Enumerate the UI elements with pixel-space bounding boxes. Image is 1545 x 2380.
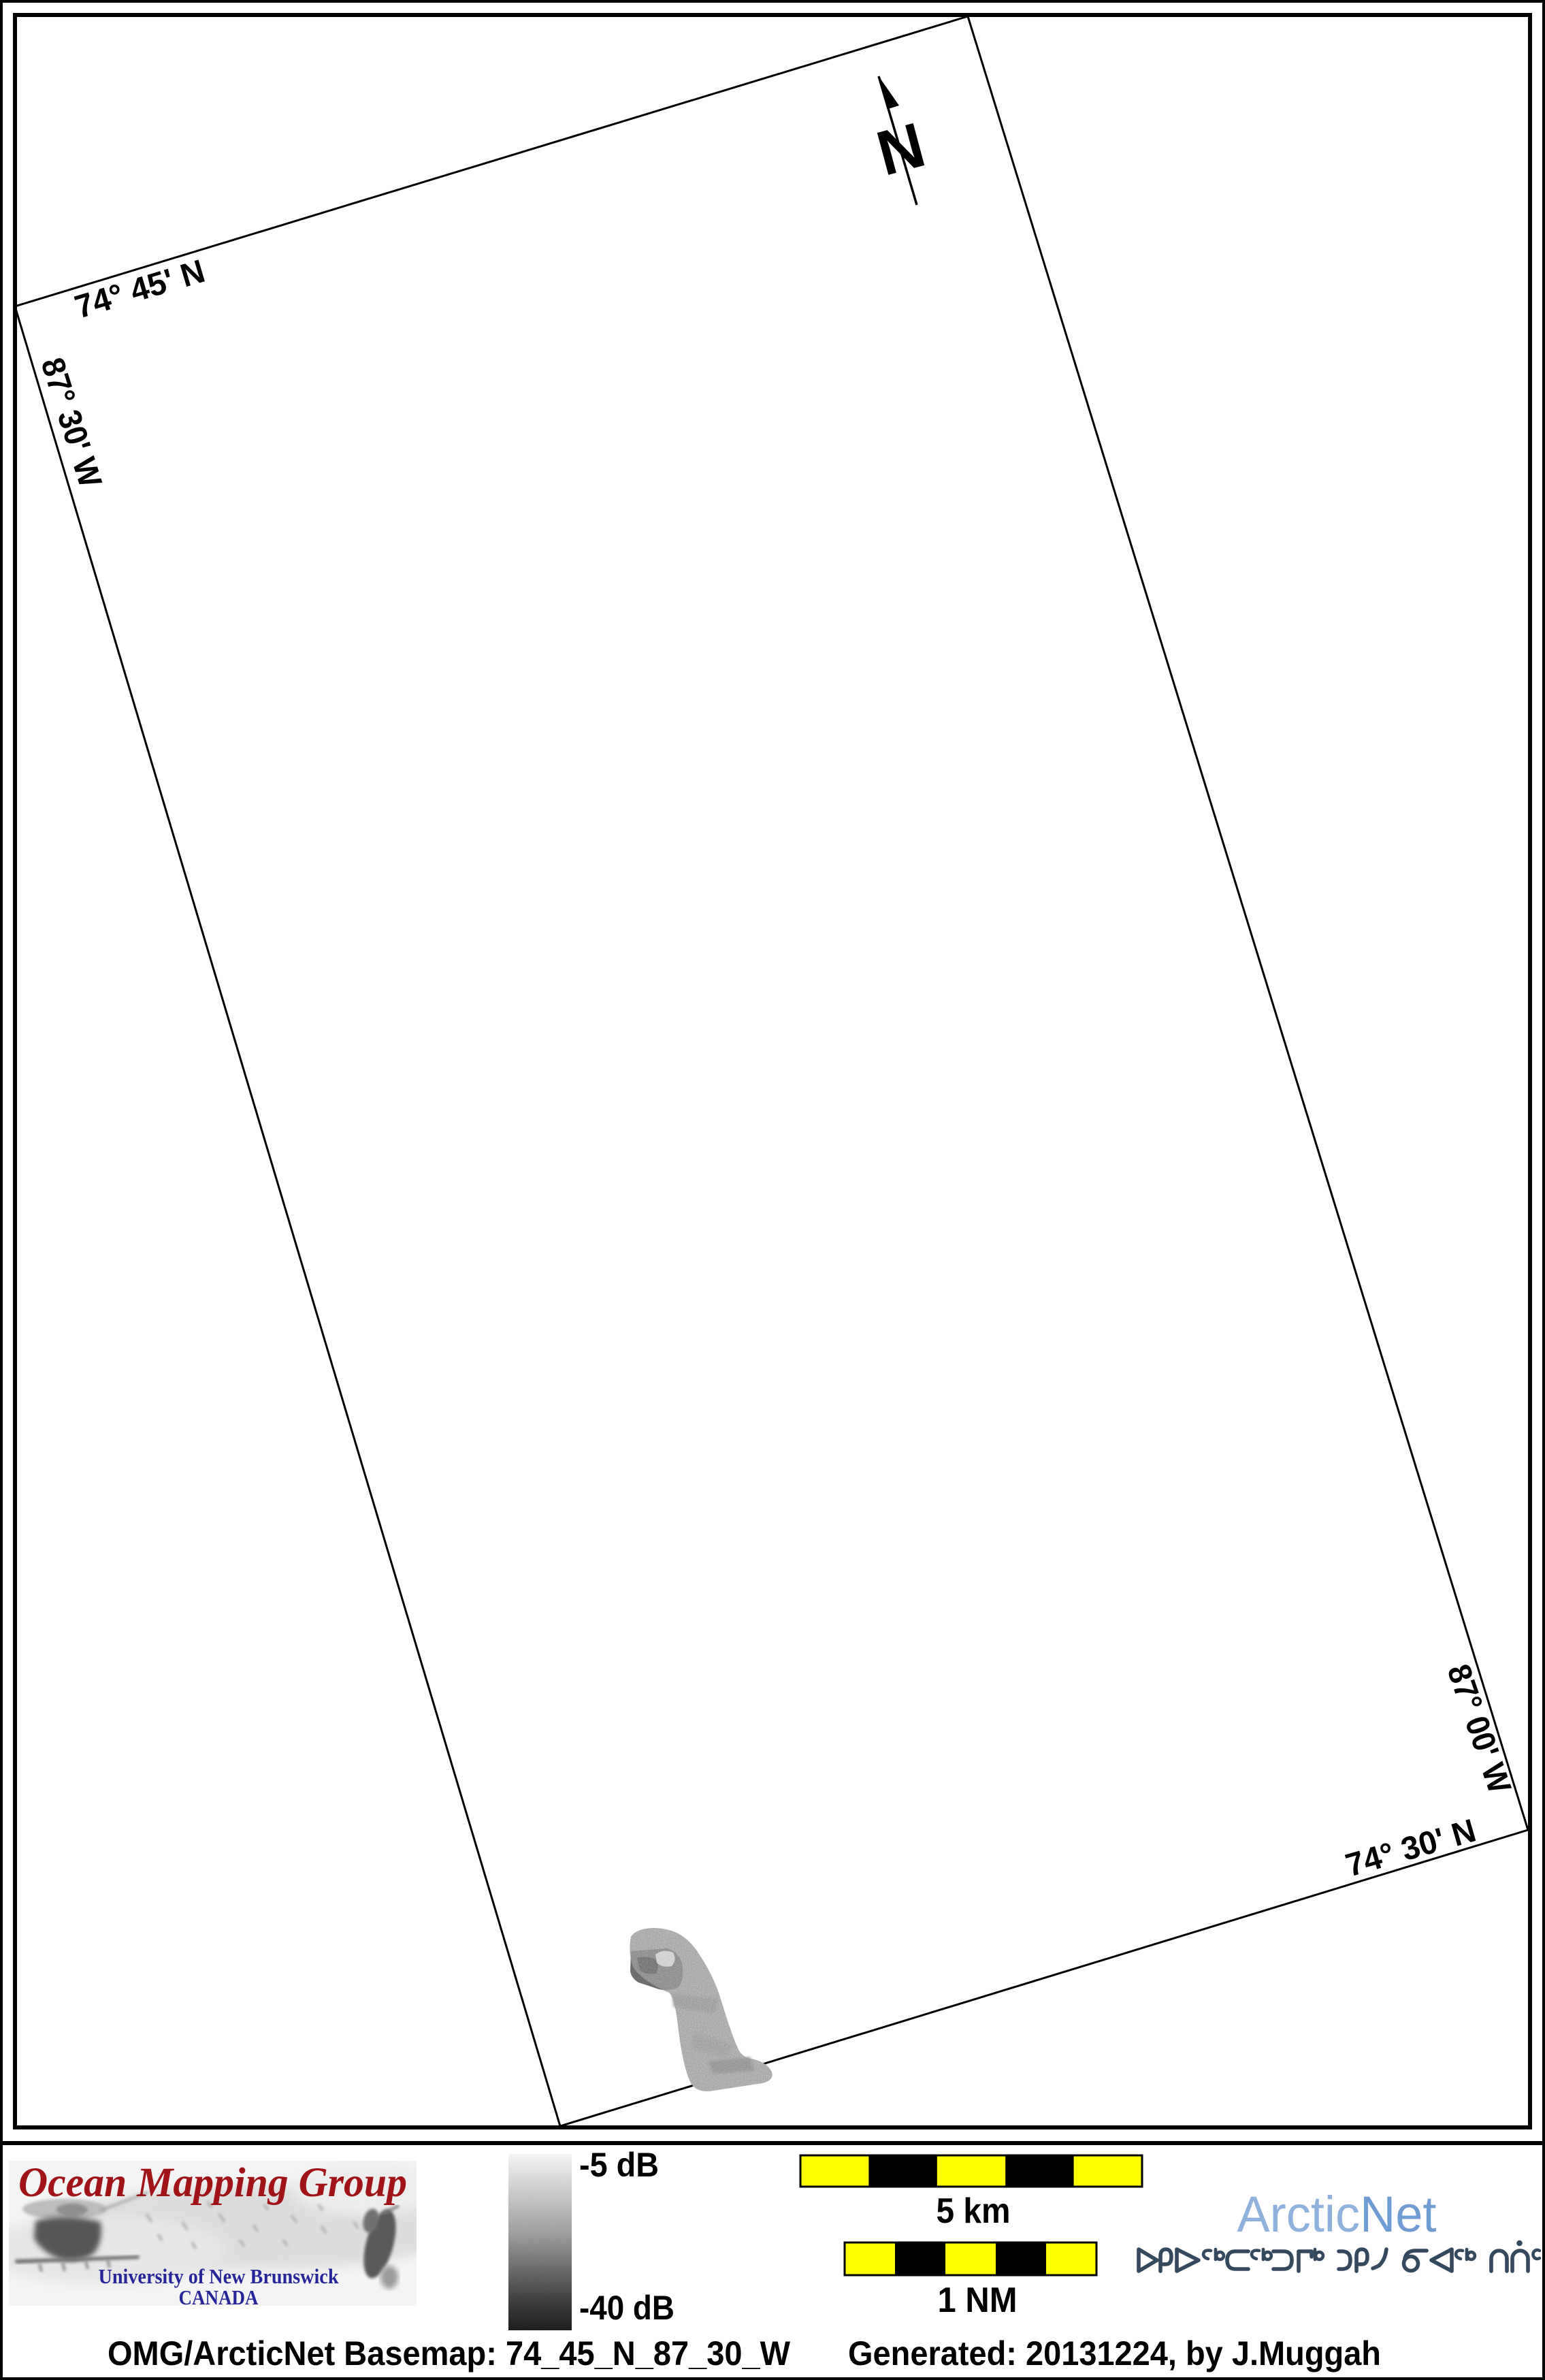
svg-text:CANADA: CANADA [179, 2285, 259, 2309]
svg-text:OMG/ArcticNet Basemap: 74_45_N: OMG/ArcticNet Basemap: 74_45_N_87_30_W [108, 2334, 791, 2373]
svg-text:-5 dB: -5 dB [579, 2146, 659, 2184]
svg-text:ArcticNet: ArcticNet [1237, 2186, 1437, 2242]
svg-text:University of New Brunswick: University of New Brunswick [99, 2264, 340, 2288]
svg-text:Generated: 20131224, by J.Mugg: Generated: 20131224, by J.Muggah [848, 2334, 1381, 2373]
svg-text:Ocean Mapping Group: Ocean Mapping Group [18, 2160, 407, 2206]
svg-text:1 NM: 1 NM [938, 2281, 1018, 2320]
svg-text:-40 dB: -40 dB [579, 2289, 674, 2327]
svg-text:5 km: 5 km [937, 2191, 1011, 2231]
